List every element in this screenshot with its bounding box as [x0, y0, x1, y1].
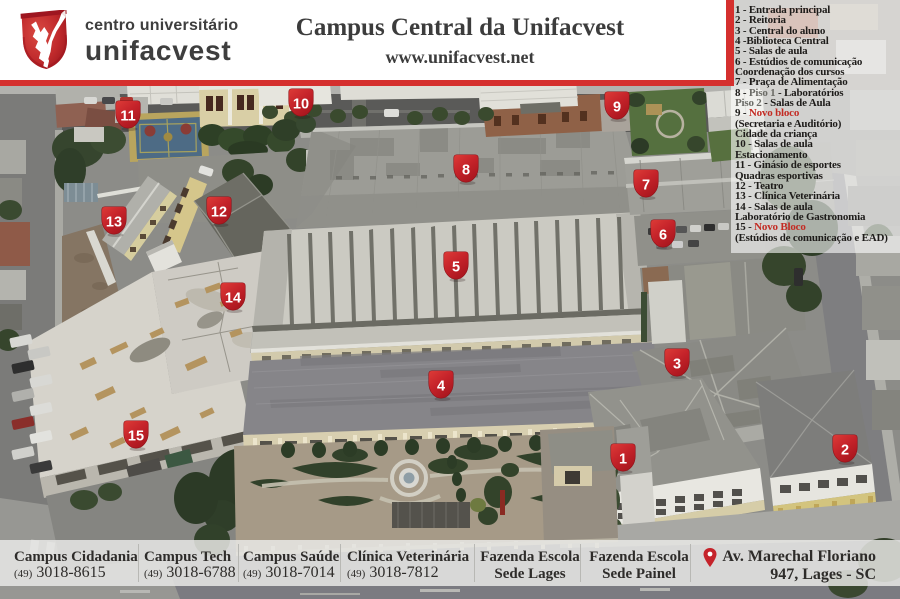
- svg-text:13: 13: [106, 215, 122, 231]
- svg-text:1: 1: [619, 452, 627, 468]
- svg-text:11: 11: [120, 109, 135, 125]
- svg-text:9: 9: [613, 100, 621, 116]
- svg-text:4: 4: [437, 379, 445, 395]
- svg-text:15: 15: [128, 429, 144, 445]
- svg-text:12: 12: [211, 205, 227, 221]
- svg-text:8: 8: [462, 163, 470, 179]
- svg-text:14: 14: [225, 291, 241, 307]
- svg-text:10: 10: [293, 97, 309, 113]
- svg-text:2: 2: [841, 443, 849, 459]
- svg-text:6: 6: [659, 228, 667, 244]
- svg-text:3: 3: [673, 357, 681, 373]
- svg-text:5: 5: [452, 260, 460, 276]
- svg-text:7: 7: [642, 178, 650, 194]
